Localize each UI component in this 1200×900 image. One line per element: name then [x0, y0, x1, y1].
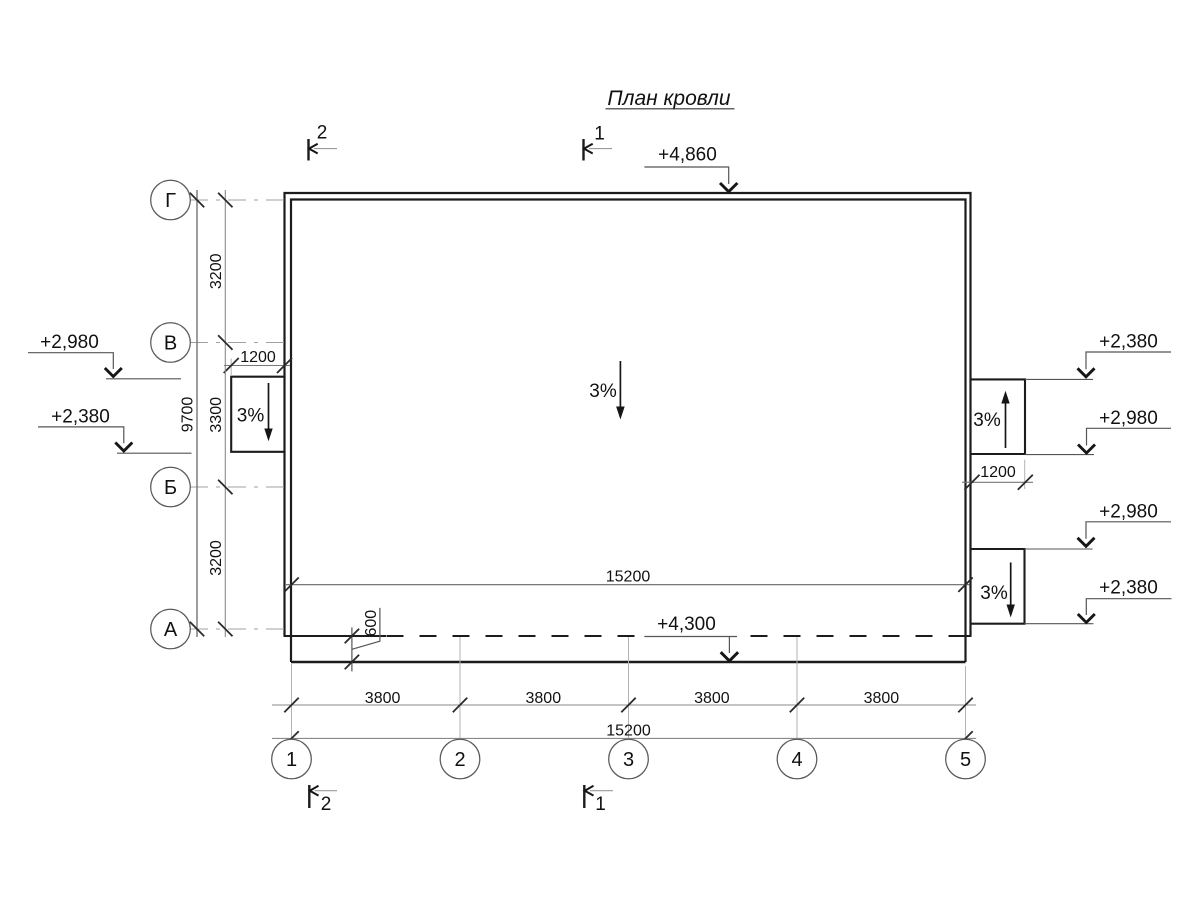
svg-text:А: А	[164, 619, 178, 641]
svg-text:+2,380: +2,380	[1099, 577, 1158, 598]
svg-text:3800: 3800	[365, 690, 401, 707]
svg-text:+2,980: +2,980	[1099, 408, 1158, 429]
svg-text:1: 1	[286, 749, 297, 771]
svg-text:План кровли: План кровли	[607, 87, 731, 110]
svg-text:3%: 3%	[589, 381, 617, 402]
svg-text:Б: Б	[164, 477, 177, 499]
svg-text:+2,380: +2,380	[1099, 331, 1158, 352]
svg-text:2: 2	[321, 794, 332, 815]
svg-text:15200: 15200	[606, 569, 651, 586]
svg-text:15200: 15200	[606, 722, 651, 739]
svg-text:+2,980: +2,980	[40, 332, 99, 353]
svg-text:5: 5	[960, 749, 971, 771]
svg-text:1200: 1200	[240, 349, 276, 366]
svg-text:Г: Г	[165, 190, 176, 212]
svg-text:3800: 3800	[694, 690, 730, 707]
svg-text:3: 3	[623, 749, 634, 771]
svg-text:+2,980: +2,980	[1099, 501, 1158, 522]
svg-text:3800: 3800	[864, 690, 900, 707]
svg-text:4: 4	[791, 749, 802, 771]
svg-text:3300: 3300	[208, 397, 225, 433]
svg-text:1: 1	[595, 794, 606, 815]
svg-text:В: В	[164, 333, 177, 355]
svg-text:3%: 3%	[973, 410, 1001, 431]
svg-text:9700: 9700	[180, 397, 197, 433]
svg-text:1200: 1200	[980, 464, 1016, 481]
svg-text:2: 2	[317, 123, 328, 144]
svg-text:3800: 3800	[526, 690, 562, 707]
svg-text:3200: 3200	[208, 253, 225, 289]
svg-text:3%: 3%	[980, 583, 1008, 604]
svg-text:+4,300: +4,300	[657, 614, 716, 635]
svg-text:2: 2	[454, 749, 465, 771]
svg-text:3200: 3200	[208, 540, 225, 576]
svg-text:3%: 3%	[237, 406, 265, 427]
svg-text:600: 600	[363, 610, 380, 637]
svg-text:+4,860: +4,860	[658, 145, 717, 166]
svg-text:1: 1	[594, 124, 605, 145]
svg-text:+2,380: +2,380	[51, 406, 110, 427]
